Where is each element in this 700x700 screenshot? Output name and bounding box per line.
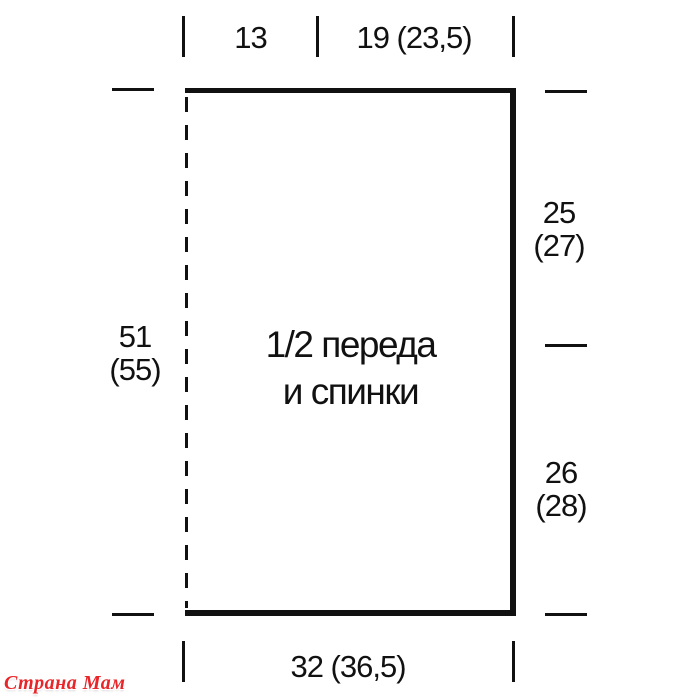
measurement-top-segment-1: 13 [185,21,316,54]
tick-left-bottom-icon [112,613,154,616]
measurement-right-upper: 25 (27) [516,196,602,262]
piece-label-line2: и спинки [185,368,516,415]
measurement-right-lower: 26 (28) [516,456,606,522]
measurement-right-upper-value: 25 [516,196,602,229]
pattern-diagram: 1/2 переда и спинки 13 19 (23,5) 51 (55)… [0,0,700,700]
tick-right-bottom-icon [545,613,587,616]
measurement-left-height-value: 51 [80,320,190,353]
tick-right-top-icon [545,90,587,93]
watermark-strana-mam: Страна Мам [4,672,125,695]
measurement-bottom-width: 32 (36,5) [183,650,513,683]
piece-label-line1: 1/2 переда [185,321,516,368]
measurement-left-height-alt: (55) [80,353,190,386]
piece-label: 1/2 переда и спинки [185,321,516,415]
measurement-right-lower-alt: (28) [516,489,606,522]
measurement-left-height: 51 (55) [80,320,190,386]
measurement-top-segment-2: 19 (23,5) [316,21,512,54]
measurement-right-lower-value: 26 [516,456,606,489]
tick-right-middle-icon [545,344,587,347]
measurement-right-upper-alt: (27) [516,229,602,262]
tick-left-top-icon [112,88,154,91]
tick-top-right-icon [512,16,515,57]
